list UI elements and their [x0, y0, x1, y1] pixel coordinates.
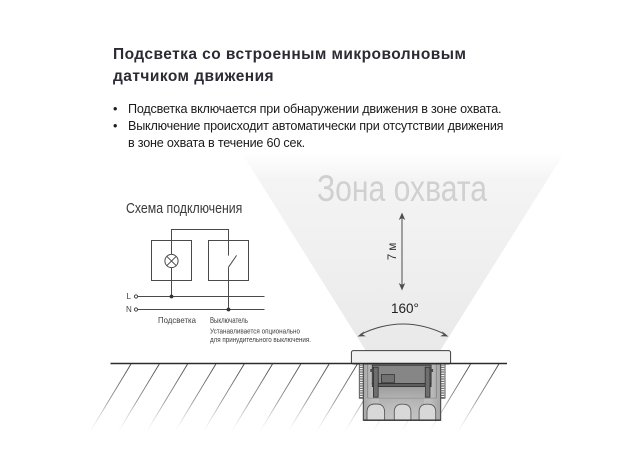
- svg-text:L: L: [127, 292, 132, 301]
- svg-text:для принудительного выключения: для принудительного выключения.: [210, 335, 311, 344]
- svg-text:Зона охвата: Зона охвата: [317, 168, 487, 209]
- svg-text:7 м: 7 м: [387, 243, 399, 261]
- svg-text:N: N: [126, 305, 132, 314]
- svg-text:Подсветка: Подсветка: [158, 315, 196, 325]
- svg-text:160°: 160°: [391, 301, 419, 316]
- svg-text:Выключатель: Выключатель: [210, 315, 248, 325]
